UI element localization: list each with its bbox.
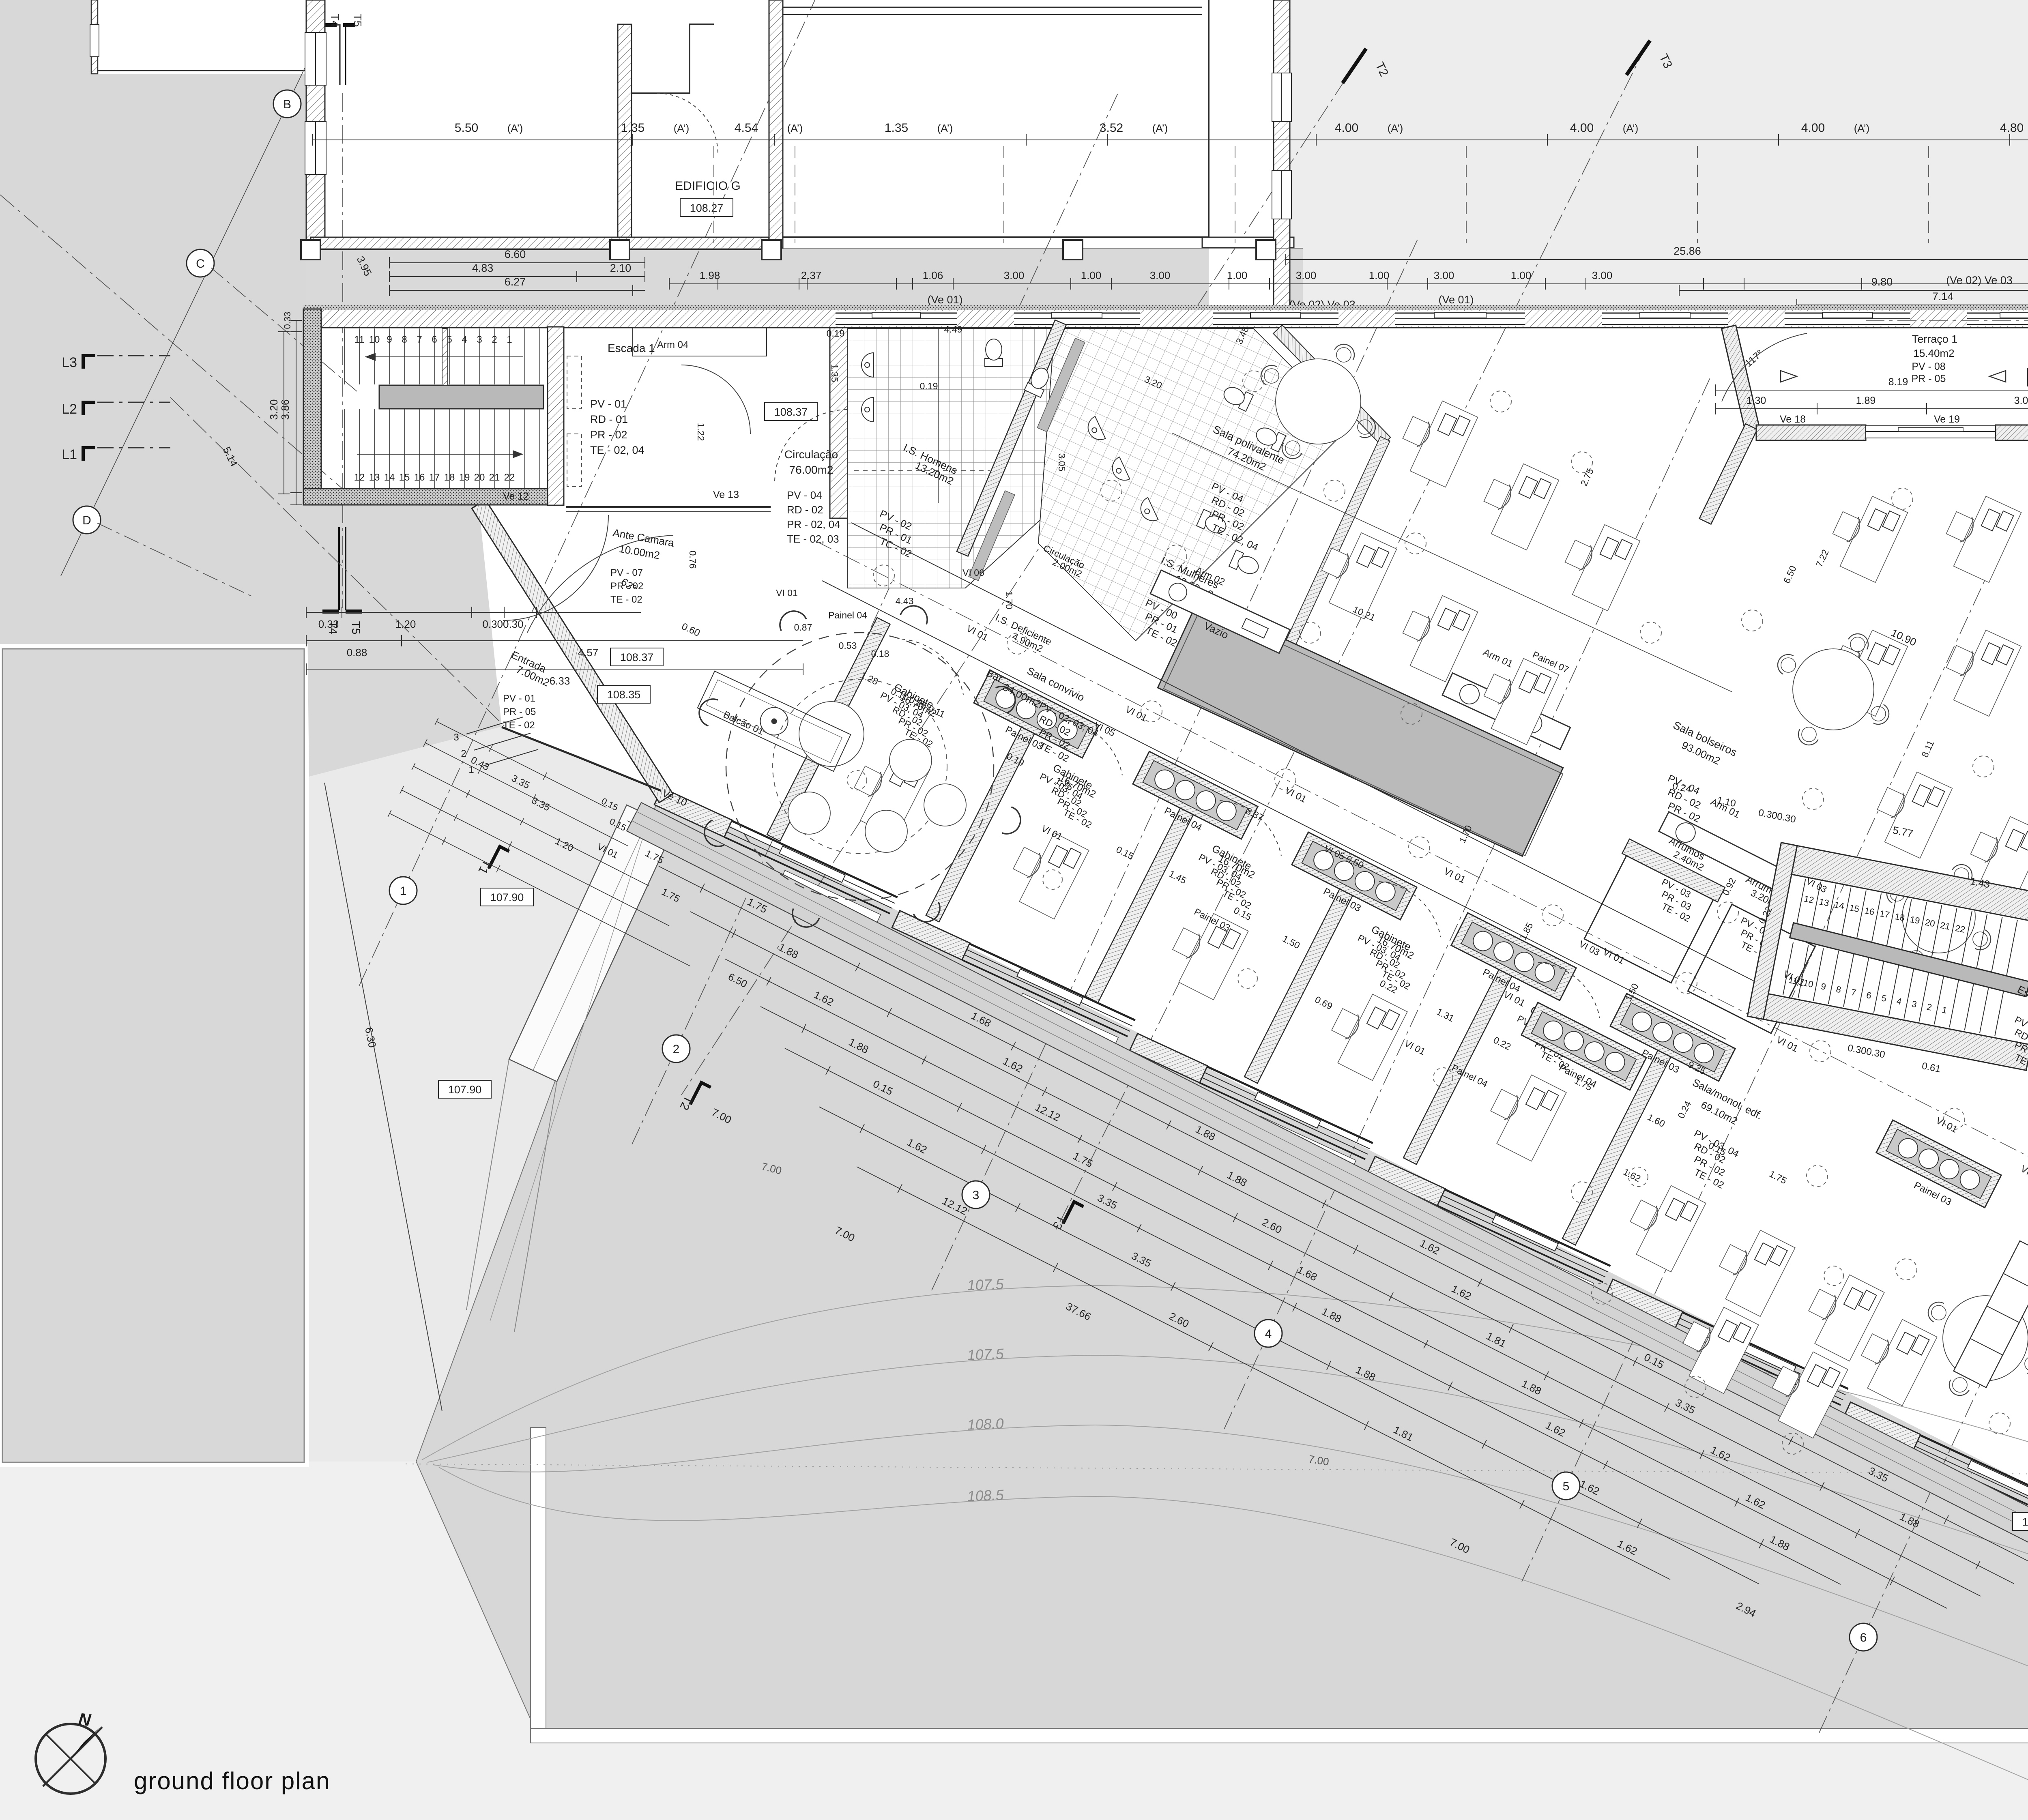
svg-text:C: C — [196, 257, 205, 270]
svg-text:4: 4 — [1265, 1327, 1272, 1341]
svg-text:Ve 18: Ve 18 — [1780, 414, 1806, 425]
svg-text:3: 3 — [453, 732, 459, 743]
svg-text:0.53: 0.53 — [839, 640, 857, 651]
svg-text:Circulação: Circulação — [784, 448, 838, 461]
svg-text:Arm 04: Arm 04 — [657, 339, 688, 350]
svg-text:VI 01: VI 01 — [776, 588, 798, 598]
svg-text:7: 7 — [417, 334, 422, 345]
svg-text:TE - 02: TE - 02 — [503, 720, 535, 731]
svg-text:1: 1 — [400, 884, 407, 898]
svg-text:TE - 02, 03: TE - 02, 03 — [787, 533, 839, 545]
svg-text:4.54: 4.54 — [735, 121, 758, 135]
svg-text:2: 2 — [461, 748, 466, 759]
svg-text:11: 11 — [354, 334, 365, 345]
svg-text:4.80: 4.80 — [2000, 121, 2024, 135]
svg-text:TE - 02, 04: TE - 02, 04 — [590, 444, 644, 456]
svg-text:22: 22 — [1955, 923, 1966, 935]
svg-text:3.00: 3.00 — [2014, 395, 2028, 406]
svg-text:22: 22 — [504, 472, 515, 483]
svg-text:107.5: 107.5 — [967, 1345, 1004, 1363]
svg-text:B: B — [283, 98, 291, 111]
svg-text:1.30: 1.30 — [1747, 395, 1766, 406]
svg-text:2.10: 2.10 — [610, 262, 632, 274]
svg-text:13: 13 — [1818, 897, 1830, 908]
svg-text:ground floor plan: ground floor plan — [134, 1767, 330, 1794]
svg-text:20: 20 — [474, 472, 485, 483]
svg-text:3.20: 3.20 — [268, 399, 280, 420]
svg-text:(A’): (A’) — [937, 122, 953, 134]
svg-text:1.89: 1.89 — [1856, 395, 1876, 406]
svg-text:107.5: 107.5 — [967, 1275, 1004, 1293]
svg-text:17: 17 — [429, 472, 440, 483]
svg-text:108.27: 108.27 — [690, 202, 724, 214]
svg-text:L2: L2 — [62, 401, 77, 417]
svg-text:(A’): (A’) — [1854, 122, 1870, 134]
svg-text:L3: L3 — [62, 355, 77, 370]
svg-text:19: 19 — [1909, 914, 1921, 926]
svg-text:16: 16 — [1864, 905, 1875, 917]
svg-text:Escada 1: Escada 1 — [608, 342, 655, 354]
svg-text:14: 14 — [1833, 899, 1845, 911]
svg-text:12: 12 — [354, 472, 365, 483]
svg-text:10: 10 — [369, 334, 380, 345]
svg-text:21: 21 — [489, 472, 500, 483]
svg-text:108.37: 108.37 — [620, 651, 654, 663]
svg-text:EDIFICIO G: EDIFICIO G — [675, 179, 741, 193]
svg-text:19: 19 — [459, 472, 470, 483]
svg-text:108.37: 108.37 — [774, 406, 808, 418]
svg-text:107.90: 107.90 — [2022, 1516, 2028, 1528]
svg-text:8: 8 — [402, 334, 407, 345]
svg-text:6: 6 — [1860, 1631, 1867, 1644]
svg-text:14: 14 — [384, 472, 395, 483]
svg-text:0.76: 0.76 — [687, 551, 698, 569]
svg-text:4.49: 4.49 — [944, 324, 962, 335]
svg-text:0.87: 0.87 — [794, 622, 812, 633]
svg-text:PV - 01: PV - 01 — [503, 693, 535, 704]
svg-text:5.50: 5.50 — [455, 121, 478, 135]
svg-text:9.80: 9.80 — [1871, 276, 1893, 288]
svg-text:107.90: 107.90 — [448, 1084, 482, 1096]
svg-text:1.00: 1.00 — [1511, 269, 1532, 281]
svg-text:Ve 12: Ve 12 — [503, 491, 529, 502]
svg-text:20: 20 — [1924, 917, 1936, 929]
svg-text:T4: T4 — [329, 14, 341, 27]
svg-text:PV - 08: PV - 08 — [1912, 361, 1945, 372]
svg-text:6.27: 6.27 — [505, 276, 526, 288]
svg-text:PR - 02: PR - 02 — [610, 581, 643, 592]
svg-text:1.20: 1.20 — [395, 618, 416, 630]
svg-text:3.00: 3.00 — [1296, 269, 1317, 281]
svg-text:L1: L1 — [62, 447, 77, 462]
svg-text:1.00: 1.00 — [1081, 269, 1102, 281]
svg-text:Terraço 1: Terraço 1 — [1912, 333, 1958, 345]
svg-text:RD - 02: RD - 02 — [787, 504, 823, 516]
svg-text:108.5: 108.5 — [967, 1486, 1004, 1504]
svg-text:Painel 04: Painel 04 — [828, 610, 867, 620]
svg-text:4.00: 4.00 — [1570, 121, 1594, 135]
svg-text:(A’): (A’) — [1388, 122, 1403, 134]
svg-text:3.00: 3.00 — [1150, 269, 1171, 281]
svg-text:(Ve 01): (Ve 01) — [1438, 294, 1474, 306]
svg-text:(A’): (A’) — [1152, 122, 1168, 134]
svg-text:3.00: 3.00 — [1592, 269, 1613, 281]
svg-text:1.35: 1.35 — [829, 364, 840, 382]
svg-text:Ve 19: Ve 19 — [1934, 414, 1960, 425]
svg-text:5: 5 — [1563, 1480, 1570, 1493]
svg-text:3.52: 3.52 — [1100, 121, 1123, 135]
svg-text:3.00: 3.00 — [1434, 269, 1454, 281]
svg-text:2: 2 — [492, 334, 497, 345]
svg-text:108.0: 108.0 — [967, 1415, 1004, 1433]
svg-text:1: 1 — [507, 334, 512, 345]
svg-text:(A’): (A’) — [507, 122, 523, 134]
svg-text:0.19: 0.19 — [827, 328, 845, 339]
svg-text:18: 18 — [1894, 911, 1906, 923]
svg-text:T5: T5 — [350, 621, 362, 635]
svg-text:4: 4 — [462, 334, 467, 345]
svg-text:17: 17 — [1879, 908, 1891, 920]
svg-text:12: 12 — [1803, 893, 1815, 905]
svg-text:9: 9 — [387, 334, 392, 345]
svg-text:3.86: 3.86 — [279, 399, 291, 420]
svg-text:15: 15 — [1849, 902, 1860, 914]
svg-text:PV - 04: PV - 04 — [787, 489, 822, 501]
svg-text:1.70: 1.70 — [1004, 591, 1014, 610]
svg-text:15: 15 — [399, 472, 410, 483]
svg-text:25.86: 25.86 — [1674, 245, 1701, 257]
svg-text:1.06: 1.06 — [923, 269, 943, 281]
svg-text:TE - 02: TE - 02 — [610, 594, 642, 605]
svg-text:13: 13 — [369, 472, 380, 483]
svg-text:76.00m2: 76.00m2 — [789, 464, 834, 476]
svg-text:21: 21 — [1939, 920, 1951, 932]
svg-text:4.00: 4.00 — [1335, 121, 1358, 135]
svg-text:1.35: 1.35 — [621, 121, 644, 135]
svg-text:(Ve 02) Ve 03: (Ve 02) Ve 03 — [1946, 274, 2013, 286]
svg-text:2: 2 — [673, 1043, 680, 1056]
svg-text:1.00: 1.00 — [1227, 269, 1248, 281]
svg-text:1.35: 1.35 — [885, 121, 908, 135]
svg-text:4.00: 4.00 — [1801, 121, 1825, 135]
svg-text:4.43: 4.43 — [896, 596, 914, 606]
svg-text:D: D — [82, 514, 91, 527]
svg-text:8.19: 8.19 — [1888, 376, 1908, 388]
svg-text:1.98: 1.98 — [700, 269, 720, 281]
svg-text:18: 18 — [444, 472, 455, 483]
svg-text:4.83: 4.83 — [472, 262, 494, 274]
svg-text:0.19: 0.19 — [920, 381, 938, 391]
svg-text:PV - 01: PV - 01 — [590, 398, 627, 410]
svg-text:16: 16 — [414, 472, 425, 483]
svg-text:PR - 02: PR - 02 — [590, 429, 627, 441]
svg-text:PR - 05: PR - 05 — [503, 706, 536, 717]
svg-text:(Ve 01): (Ve 01) — [927, 294, 962, 306]
svg-text:15.40m2: 15.40m2 — [1913, 347, 1954, 359]
svg-text:108.35: 108.35 — [607, 689, 641, 701]
svg-text:6: 6 — [432, 334, 437, 345]
svg-text:3: 3 — [477, 334, 482, 345]
svg-text:RD - 01: RD - 01 — [590, 413, 628, 425]
svg-text:7.14: 7.14 — [1932, 290, 1954, 303]
svg-text:0.18: 0.18 — [871, 648, 889, 659]
svg-text:1.22: 1.22 — [696, 423, 706, 441]
svg-text:4.57: 4.57 — [578, 646, 599, 659]
svg-text:PR - 02, 04: PR - 02, 04 — [787, 518, 840, 530]
svg-text:3: 3 — [973, 1189, 980, 1202]
svg-text:(A’): (A’) — [1623, 122, 1639, 134]
svg-text:0.33: 0.33 — [282, 312, 292, 329]
svg-text:107.90: 107.90 — [490, 891, 524, 904]
svg-text:Ve 13: Ve 13 — [713, 489, 739, 500]
svg-text:T5: T5 — [351, 14, 364, 27]
svg-text:3.00: 3.00 — [1004, 269, 1025, 281]
svg-text:1.00: 1.00 — [1369, 269, 1390, 281]
svg-text:2.37: 2.37 — [801, 269, 822, 281]
svg-text:3.05: 3.05 — [1057, 453, 1067, 472]
svg-text:PV - 07: PV - 07 — [610, 567, 643, 578]
svg-text:(A’): (A’) — [787, 122, 803, 134]
svg-text:PR - 05: PR - 05 — [1912, 373, 1946, 384]
svg-text:0.33: 0.33 — [318, 618, 339, 630]
svg-text:(A’): (A’) — [674, 122, 690, 134]
svg-text:6.60: 6.60 — [505, 248, 526, 260]
svg-text:6.33: 6.33 — [550, 675, 570, 687]
svg-text:0.88: 0.88 — [347, 646, 367, 659]
svg-text:VI 06: VI 06 — [962, 567, 984, 578]
